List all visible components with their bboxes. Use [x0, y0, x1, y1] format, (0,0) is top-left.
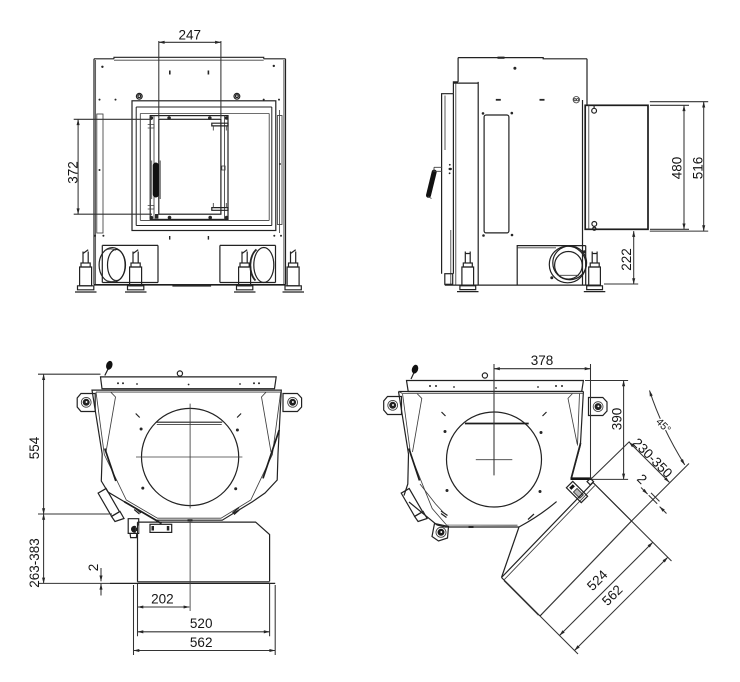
svg-text:516: 516 — [690, 157, 705, 180]
svg-text:2: 2 — [86, 564, 101, 572]
svg-text:247: 247 — [179, 28, 202, 43]
svg-text:562: 562 — [190, 635, 213, 650]
svg-text:390: 390 — [609, 408, 624, 431]
svg-text:222: 222 — [619, 248, 634, 271]
svg-text:520: 520 — [190, 616, 213, 631]
svg-text:554: 554 — [27, 436, 42, 459]
svg-text:202: 202 — [151, 591, 174, 606]
svg-text:480: 480 — [669, 157, 684, 180]
svg-text:372: 372 — [65, 161, 80, 184]
svg-text:263-383: 263-383 — [27, 538, 42, 588]
svg-text:378: 378 — [531, 353, 554, 368]
